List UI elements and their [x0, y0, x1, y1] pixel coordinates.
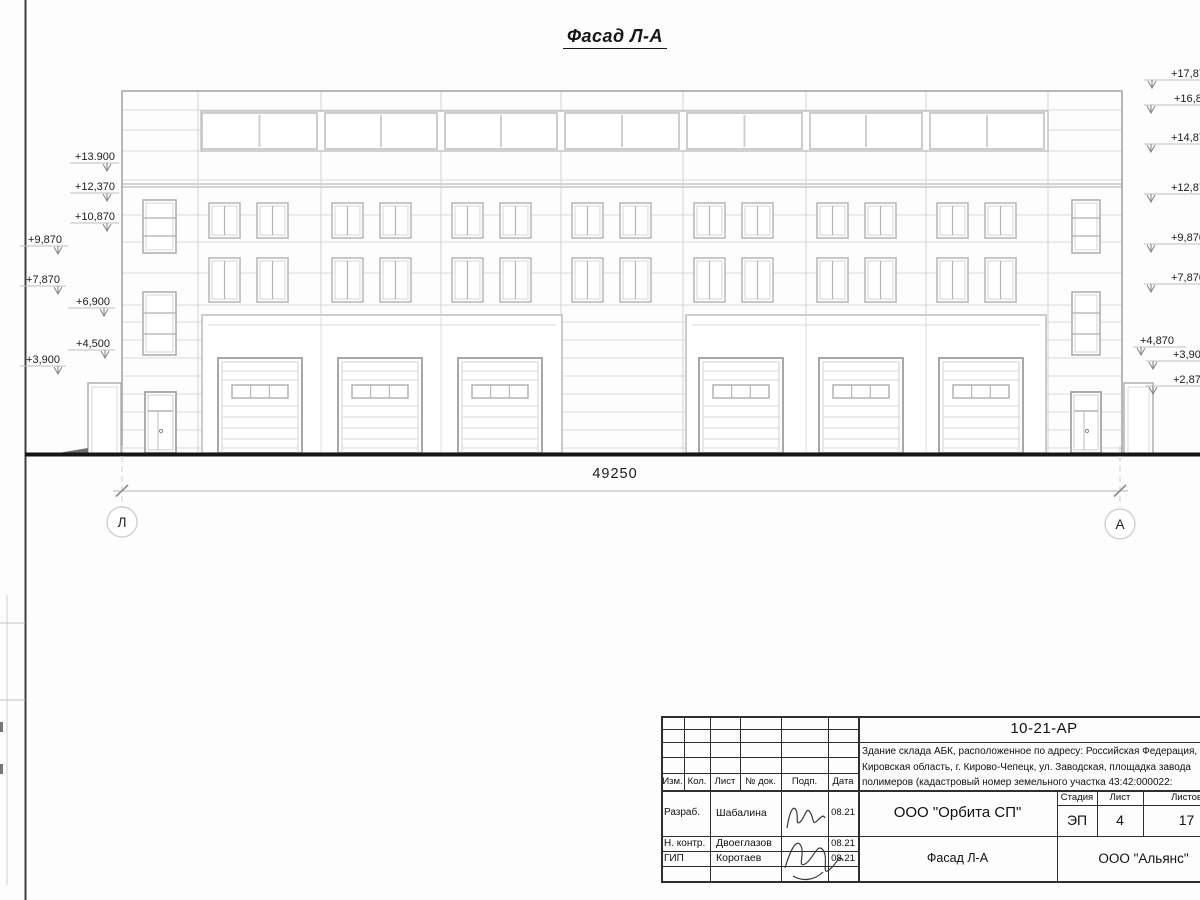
axis-bubble-left: Л: [107, 507, 137, 537]
elevation-arrow-icon: [54, 246, 62, 254]
svg-text:+12,870: +12,870: [1171, 182, 1200, 194]
svg-text:+6,900: +6,900: [76, 296, 110, 308]
elevation-mark: +2,870: [1146, 374, 1200, 394]
gate-window-strip: [953, 385, 1009, 398]
elevation-mark: +9,870: [1144, 232, 1200, 252]
svg-text:+4,500: +4,500: [76, 338, 110, 350]
tb-sheets-header: Листов: [1143, 790, 1200, 805]
svg-text:+10,870: +10,870: [75, 211, 115, 223]
tb-header-podp: Подп.: [781, 773, 828, 790]
tb-stage-value: ЭП: [1057, 805, 1097, 836]
gate-recess-bands: [202, 315, 1046, 453]
gate-window-strip: [232, 385, 288, 398]
elevation-arrow-icon: [1147, 244, 1155, 252]
tb-header-kol: Кол.: [684, 773, 710, 790]
tb-date: 08.21: [828, 836, 858, 851]
elevation-mark: +12,870: [1144, 182, 1200, 202]
svg-text:+9,870: +9,870: [28, 234, 62, 246]
axis-label-left: Л: [118, 515, 127, 530]
elevation-mark: +13.900: [70, 151, 119, 171]
svg-text:+4,870: +4,870: [1140, 335, 1174, 347]
elevation-arrow-icon: [103, 193, 111, 201]
svg-text:+17,870: +17,870: [1171, 68, 1200, 80]
tb-header-data: Дата: [828, 773, 858, 790]
tb-sheet-value: 4: [1097, 805, 1143, 836]
elevation-arrow-icon: [1147, 194, 1155, 202]
elevation-mark: +7,870: [20, 274, 66, 294]
binding-margin-stubs: [0, 595, 25, 885]
tb-line: [661, 757, 858, 758]
tb-header-izm: Изм.: [661, 773, 684, 790]
tb-doc-code: 10-21-АР: [858, 716, 1200, 742]
svg-text:+13.900: +13.900: [75, 151, 115, 163]
tb-role: Разраб.: [664, 790, 709, 836]
elevation-mark: +3,900: [20, 354, 66, 374]
svg-text:+9,870: +9,870: [1171, 232, 1200, 244]
elevation-mark: +14,870: [1144, 132, 1200, 152]
tb-line: [661, 866, 858, 867]
stairwell-window: [143, 200, 176, 253]
elevation-mark: +7,870: [1144, 272, 1200, 292]
elevation-mark: +4,500: [68, 338, 115, 358]
elevation-arrow-icon: [1137, 347, 1145, 355]
elevation-arrow-icon: [103, 223, 111, 231]
tb-border: [661, 881, 1200, 883]
sectional-gates: [218, 358, 1023, 453]
elevation-arrow-icon: [1148, 80, 1156, 88]
tb-sheet-header: Лист: [1097, 790, 1143, 805]
drawing-sheet: Л А +13.900+12,370+10,870+9,870+7,870+6,…: [0, 0, 1200, 900]
elevation-arrow-icon: [1147, 105, 1155, 113]
gate-window-strip: [713, 385, 769, 398]
elevation-mark: +16,870: [1144, 93, 1200, 113]
drawing-title-text: Фасад Л-А: [563, 26, 667, 49]
tb-line: [661, 729, 858, 730]
entrance-door: [145, 392, 176, 453]
elevation-arrow-icon: [101, 350, 109, 358]
tb-date: 08.21: [828, 851, 858, 866]
elevation-arrow-icon: [1147, 144, 1155, 152]
drawing-title: Фасад Л-А: [465, 26, 765, 47]
axis-label-right: А: [1115, 517, 1124, 532]
signature: [787, 808, 825, 828]
svg-text:+12,370: +12,370: [75, 181, 115, 193]
entrance-ramp: [58, 448, 88, 453]
tb-sheets-value: 17: [1143, 805, 1200, 836]
tb-name: Двоеглазов: [716, 836, 780, 851]
tb-description-line: Здание склада АБК, расположенное по адре…: [862, 744, 1200, 760]
svg-text:+3,900: +3,900: [1173, 349, 1200, 361]
tb-date: 08.21: [828, 790, 858, 836]
elevation-arrow-icon: [1147, 284, 1155, 292]
tb-role: ГИП: [664, 851, 709, 866]
ground-line: [25, 453, 1200, 457]
tb-name: Коротаев: [716, 851, 780, 866]
svg-text:+7,870: +7,870: [26, 274, 60, 286]
elevation-arrow-icon: [1149, 361, 1157, 369]
tb-description-line: полимеров (кадастровый номер земельного …: [862, 775, 1200, 790]
elevation-mark: +10,870: [70, 211, 119, 231]
gate-window-strip: [472, 385, 528, 398]
casement-windows: [209, 203, 1016, 302]
elevation-mark: +6,900: [68, 296, 115, 316]
tb-description-line: Кировская область, г. Кирово-Чепецк, ул.…: [862, 760, 1200, 776]
elevation-arrow-icon: [54, 366, 62, 374]
gate-window-strip: [833, 385, 889, 398]
elevation-mark: +3,900: [1146, 349, 1200, 369]
entrance-door: [1071, 392, 1101, 453]
svg-text:+7,870: +7,870: [1171, 272, 1200, 284]
elevation-mark: +9,870: [20, 234, 68, 254]
tb-line: [661, 742, 1200, 743]
elevation-mark: +12,370: [70, 181, 119, 201]
elevation-arrow-icon: [54, 286, 62, 294]
elevation-arrow-icon: [103, 163, 111, 171]
svg-text:+16,870: +16,870: [1174, 93, 1200, 105]
stairwell-window: [1072, 292, 1100, 355]
svg-text:+2,870: +2,870: [1173, 374, 1200, 386]
tb-stage-header: Стадия: [1057, 790, 1097, 805]
tb-company: ООО "Орбита СП": [858, 790, 1057, 836]
elevation-arrow-icon: [100, 308, 108, 316]
right-porch: [1124, 383, 1153, 455]
left-porch: [58, 383, 121, 455]
tb-role: Н. контр.: [664, 836, 709, 851]
tb-org: ООО "Альянс": [1057, 836, 1200, 881]
stairwell-window: [143, 292, 176, 355]
tb-header-doc: № док.: [740, 773, 781, 790]
dimension-value: 49250: [540, 466, 690, 482]
stairwell-window: [1072, 200, 1100, 253]
svg-text:+14,870: +14,870: [1171, 132, 1200, 144]
axis-bubble-right: А: [1105, 509, 1135, 539]
tb-name: Шабалина: [716, 790, 780, 836]
tb-sheet-title: Фасад Л-А: [858, 836, 1057, 881]
tb-header-list: Лист: [710, 773, 740, 790]
tb-description: Здание склада АБК, расположенное по адре…: [862, 744, 1200, 790]
gate-window-strip: [352, 385, 408, 398]
clerestory-window-band: [201, 111, 1048, 151]
svg-text:+3,900: +3,900: [26, 354, 60, 366]
elevation-mark: +17,870: [1144, 68, 1200, 88]
